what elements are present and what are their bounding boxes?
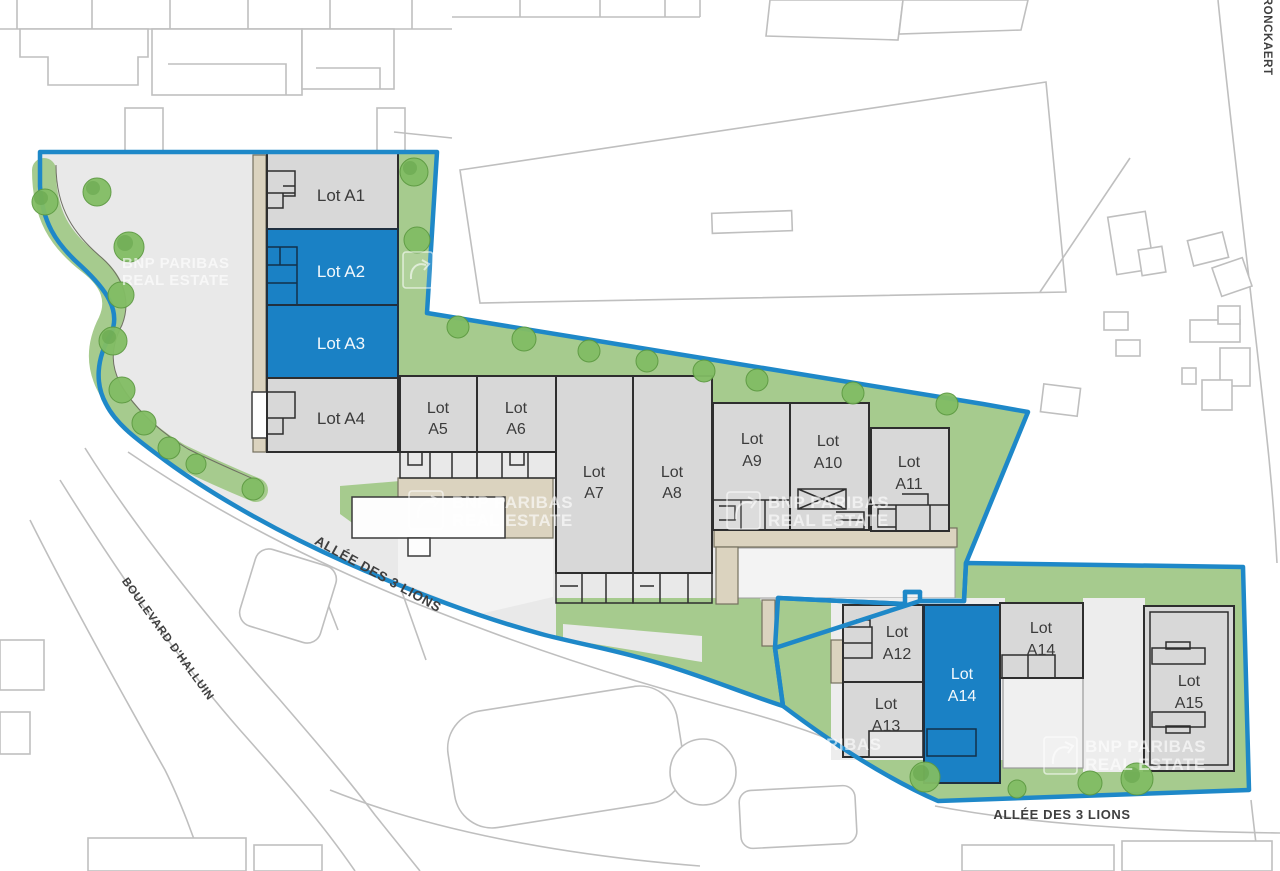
lot-a12-label: Lot	[886, 624, 909, 641]
lot-a1-label: Lot A1	[317, 186, 365, 205]
lot-a5-label: Lot	[427, 400, 450, 417]
tree-icon	[746, 369, 768, 391]
lot-a14-small-label: Lot	[1030, 620, 1053, 637]
svg-text:A9: A9	[742, 453, 762, 470]
site-plan-canvas: BNP PARIBAS REAL ESTATE BNP PARIBAS REAL…	[0, 0, 1280, 871]
street-rue: RUE DU DRONCKAERT	[1261, 0, 1273, 76]
tree-icon	[109, 377, 135, 403]
street-allee-lower: ALLÉE DES 3 LIONS	[993, 807, 1130, 822]
brand-logo-icon	[403, 252, 433, 288]
watermark-center-right: BNP PARIBAS REAL ESTATE	[727, 492, 889, 530]
tree-icon	[404, 227, 430, 253]
svg-text:A11: A11	[895, 476, 922, 493]
tree-icon	[1078, 771, 1102, 795]
tree-icon	[693, 360, 715, 382]
tree-icon	[447, 316, 469, 338]
watermark-center-left: BNP PARIBAS REAL ESTATE	[409, 491, 573, 530]
svg-text:A6: A6	[506, 421, 526, 438]
watermark-text: ESTATE	[778, 757, 846, 776]
svg-text:A10: A10	[814, 455, 843, 472]
svg-text:A13: A13	[872, 718, 901, 735]
svg-text:A15: A15	[1175, 695, 1204, 712]
lot-a3-label: Lot A3	[317, 334, 365, 353]
tree-icon	[842, 382, 864, 404]
lot-a13-label: Lot	[875, 696, 898, 713]
tree-icon	[936, 393, 958, 415]
svg-text:A7: A7	[584, 485, 604, 502]
tree-icon	[512, 327, 536, 351]
tree-icon	[158, 437, 180, 459]
tree-icon	[242, 478, 264, 500]
svg-text:A12: A12	[883, 646, 912, 663]
lot-a7-label: Lot	[583, 464, 606, 481]
watermark-text: P PARIBAS	[786, 735, 882, 754]
tree-icon	[132, 411, 156, 435]
watermark-text: REAL ESTATE	[1085, 755, 1206, 774]
lot-a14-main-label: Lot	[951, 666, 974, 683]
watermark-text: BNP PARIBAS	[1085, 737, 1206, 756]
tree-icon	[186, 454, 206, 474]
lot-a14-small[interactable]	[1000, 603, 1083, 678]
svg-text:A8: A8	[662, 485, 682, 502]
watermark-text: REAL ESTATE	[122, 272, 229, 289]
lot-a2-label: Lot A2	[317, 262, 365, 281]
tree-icon	[636, 350, 658, 372]
lot-a8-label: Lot	[661, 464, 684, 481]
watermark-text: REAL ESTATE	[768, 511, 889, 530]
watermark-text: BNP PARIBAS	[452, 493, 573, 512]
svg-text:A5: A5	[428, 421, 448, 438]
svg-text:A14: A14	[1027, 642, 1056, 659]
lot-a4-label: Lot A4	[317, 409, 365, 428]
watermark-text: BNP PARIBAS	[122, 255, 229, 272]
watermark-text: BNP PARIBAS	[768, 493, 889, 512]
lot-a15-label: Lot	[1178, 673, 1201, 690]
tree-icon	[1008, 780, 1026, 798]
watermark-top-left: BNP PARIBAS REAL ESTATE	[122, 255, 229, 289]
lot-a9-label: Lot	[741, 431, 764, 448]
lot-a10-label: Lot	[817, 433, 840, 450]
tree-icon	[578, 340, 600, 362]
lot-a6-label: Lot	[505, 400, 528, 417]
watermark-text: REAL ESTATE	[452, 511, 573, 530]
svg-text:A14: A14	[948, 688, 977, 705]
lot-a11-label: Lot	[898, 454, 921, 471]
watermark-bottom-right: BNP PARIBAS REAL ESTATE	[1044, 737, 1206, 774]
site-plan: BNP PARIBAS REAL ESTATE BNP PARIBAS REAL…	[0, 0, 1280, 871]
